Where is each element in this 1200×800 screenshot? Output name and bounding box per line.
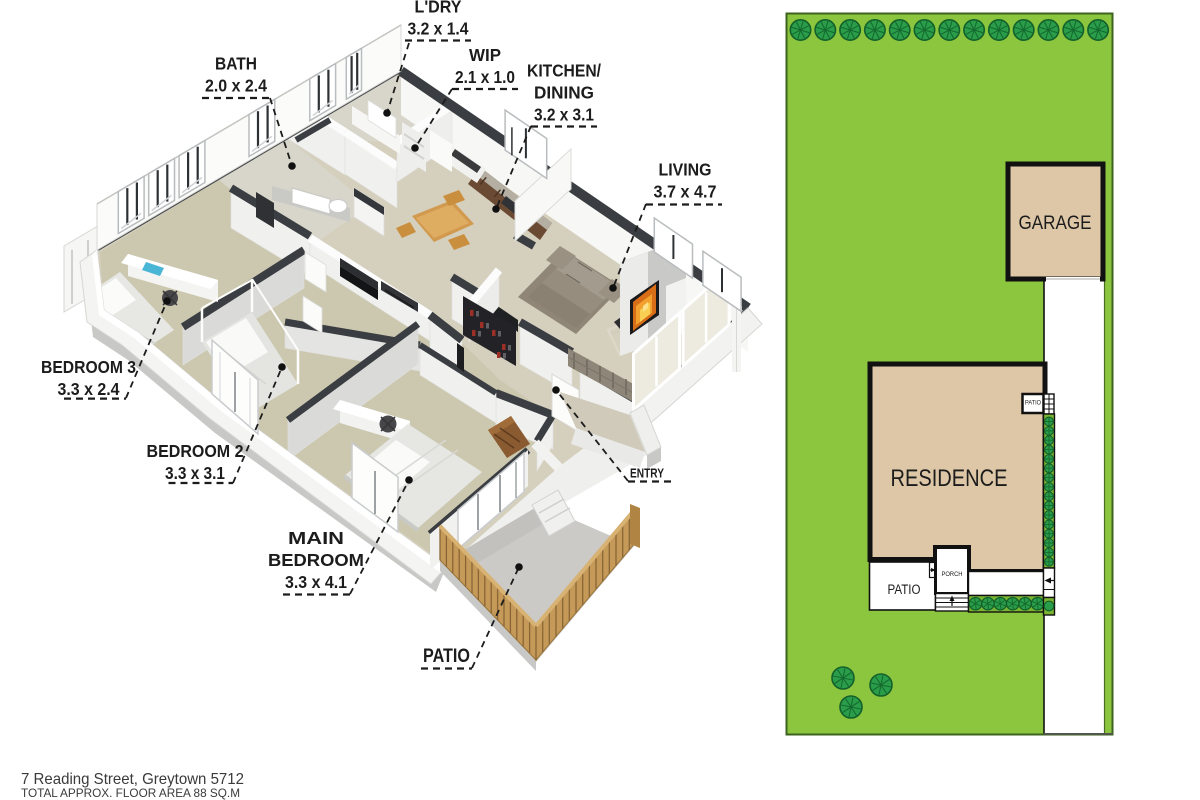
svg-text:RESIDENCE: RESIDENCE <box>891 465 1008 492</box>
svg-text:3.2 x 3.1: 3.2 x 3.1 <box>534 105 594 125</box>
svg-text:PATIO: PATIO <box>888 582 921 597</box>
svg-text:LIVING: LIVING <box>659 160 712 180</box>
svg-text:MAIN: MAIN <box>288 528 344 548</box>
svg-text:3.3 x 2.4: 3.3 x 2.4 <box>58 379 120 399</box>
svg-text:2.1 x 1.0: 2.1 x 1.0 <box>455 67 515 87</box>
svg-text:WIP: WIP <box>469 45 501 65</box>
svg-text:GARAGE: GARAGE <box>1019 213 1092 234</box>
svg-text:2.0 x 2.4: 2.0 x 2.4 <box>205 76 267 96</box>
svg-text:PATIO: PATIO <box>1025 400 1041 407</box>
svg-text:ENTRY: ENTRY <box>630 466 664 481</box>
svg-text:3.7 x 4.7: 3.7 x 4.7 <box>654 182 717 202</box>
svg-text:BATH: BATH <box>215 54 257 74</box>
svg-text:BEDROOM: BEDROOM <box>268 550 364 570</box>
svg-text:PORCH: PORCH <box>942 572 963 578</box>
svg-text:3.3 x 3.1: 3.3 x 3.1 <box>165 463 225 483</box>
svg-text:3.2 x 1.4: 3.2 x 1.4 <box>408 19 469 39</box>
svg-text:PATIO: PATIO <box>423 645 470 667</box>
svg-text:TOTAL APPROX. FLOOR AREA 88 SQ: TOTAL APPROX. FLOOR AREA 88 SQ.M <box>21 786 240 800</box>
svg-text:BEDROOM 3: BEDROOM 3 <box>41 357 136 377</box>
svg-text:3.3 x 4.1: 3.3 x 4.1 <box>285 572 347 592</box>
svg-text:DINING: DINING <box>534 83 594 103</box>
svg-text:KITCHEN/: KITCHEN/ <box>527 61 601 81</box>
svg-text:L'DRY: L'DRY <box>415 0 462 17</box>
svg-text:BEDROOM 2: BEDROOM 2 <box>147 441 244 461</box>
